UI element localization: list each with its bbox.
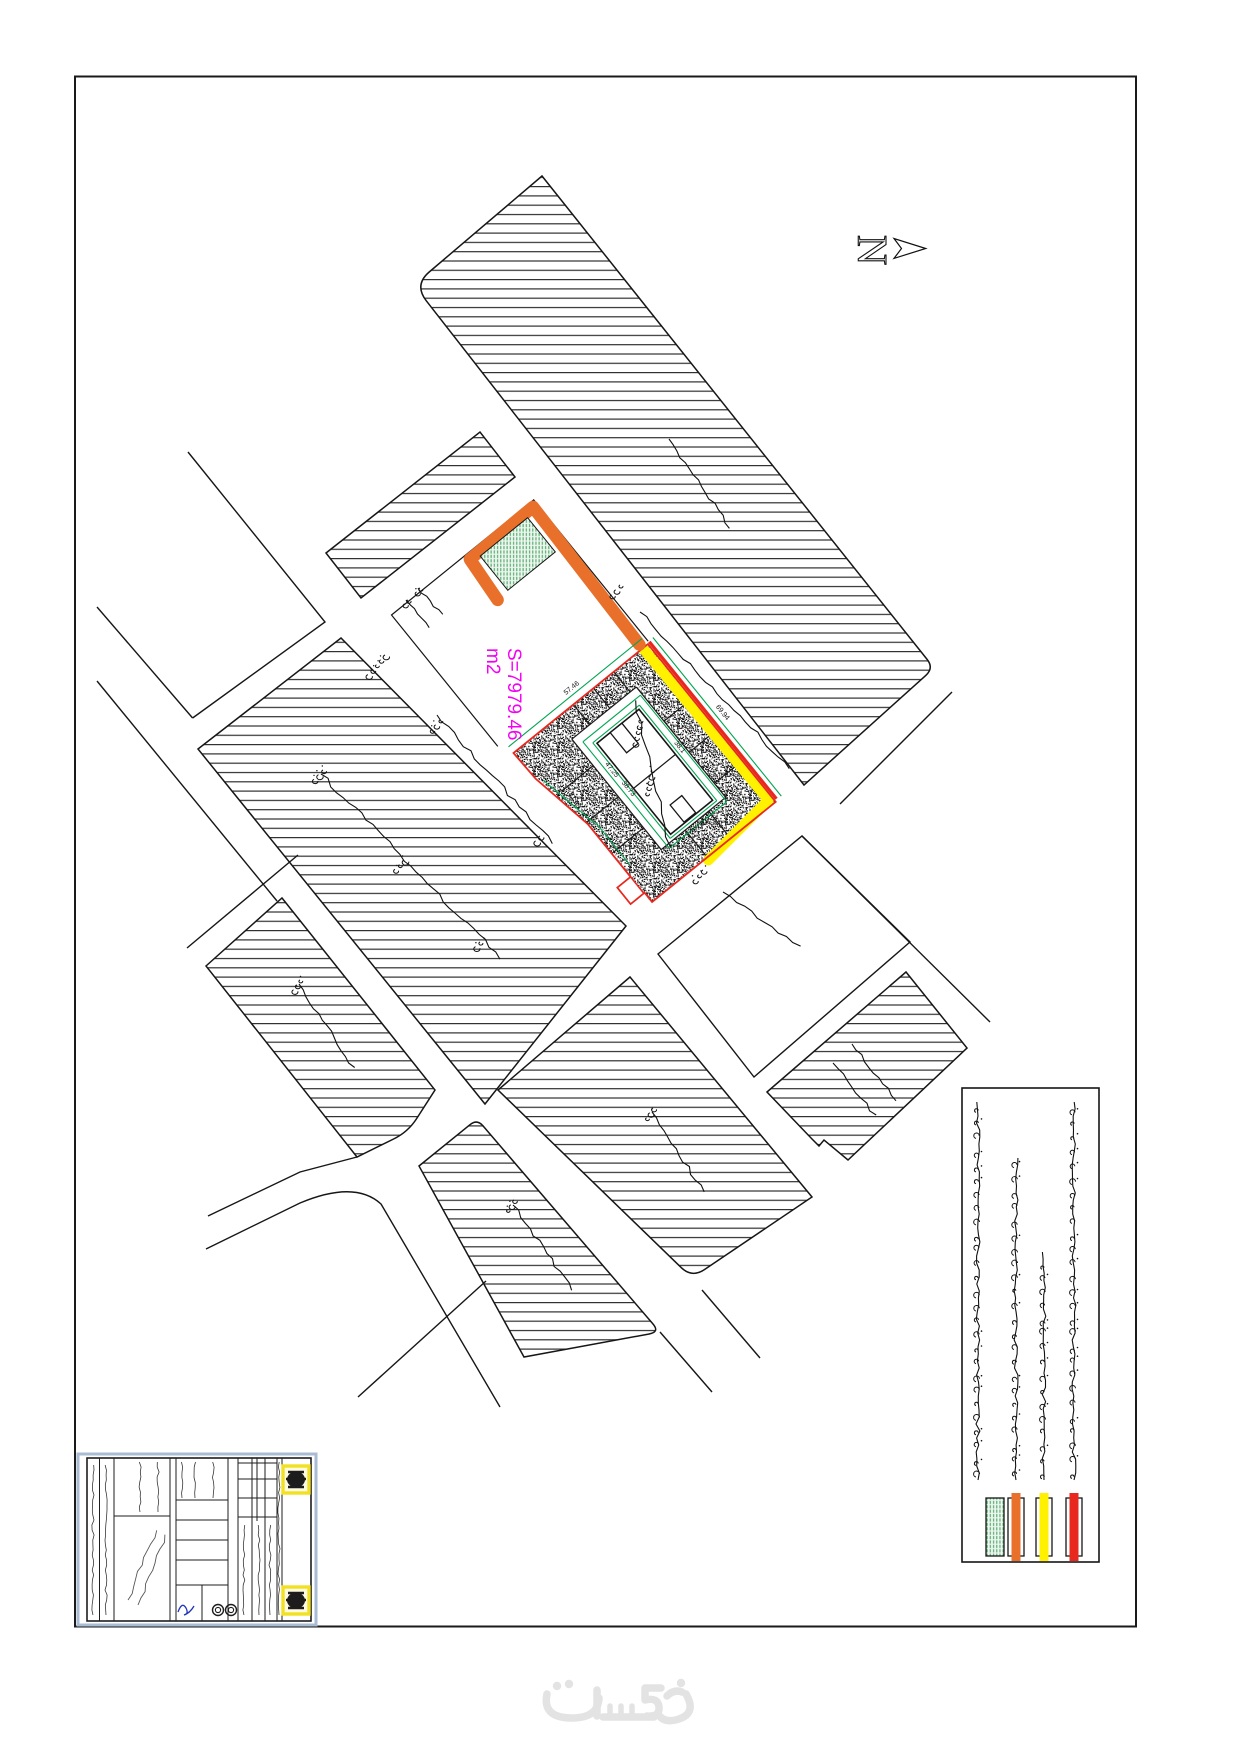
svg-text:m2: m2 [482,648,503,674]
svg-text:S=7979.46: S=7979.46 [503,648,524,740]
svg-text:N: N [848,235,894,265]
